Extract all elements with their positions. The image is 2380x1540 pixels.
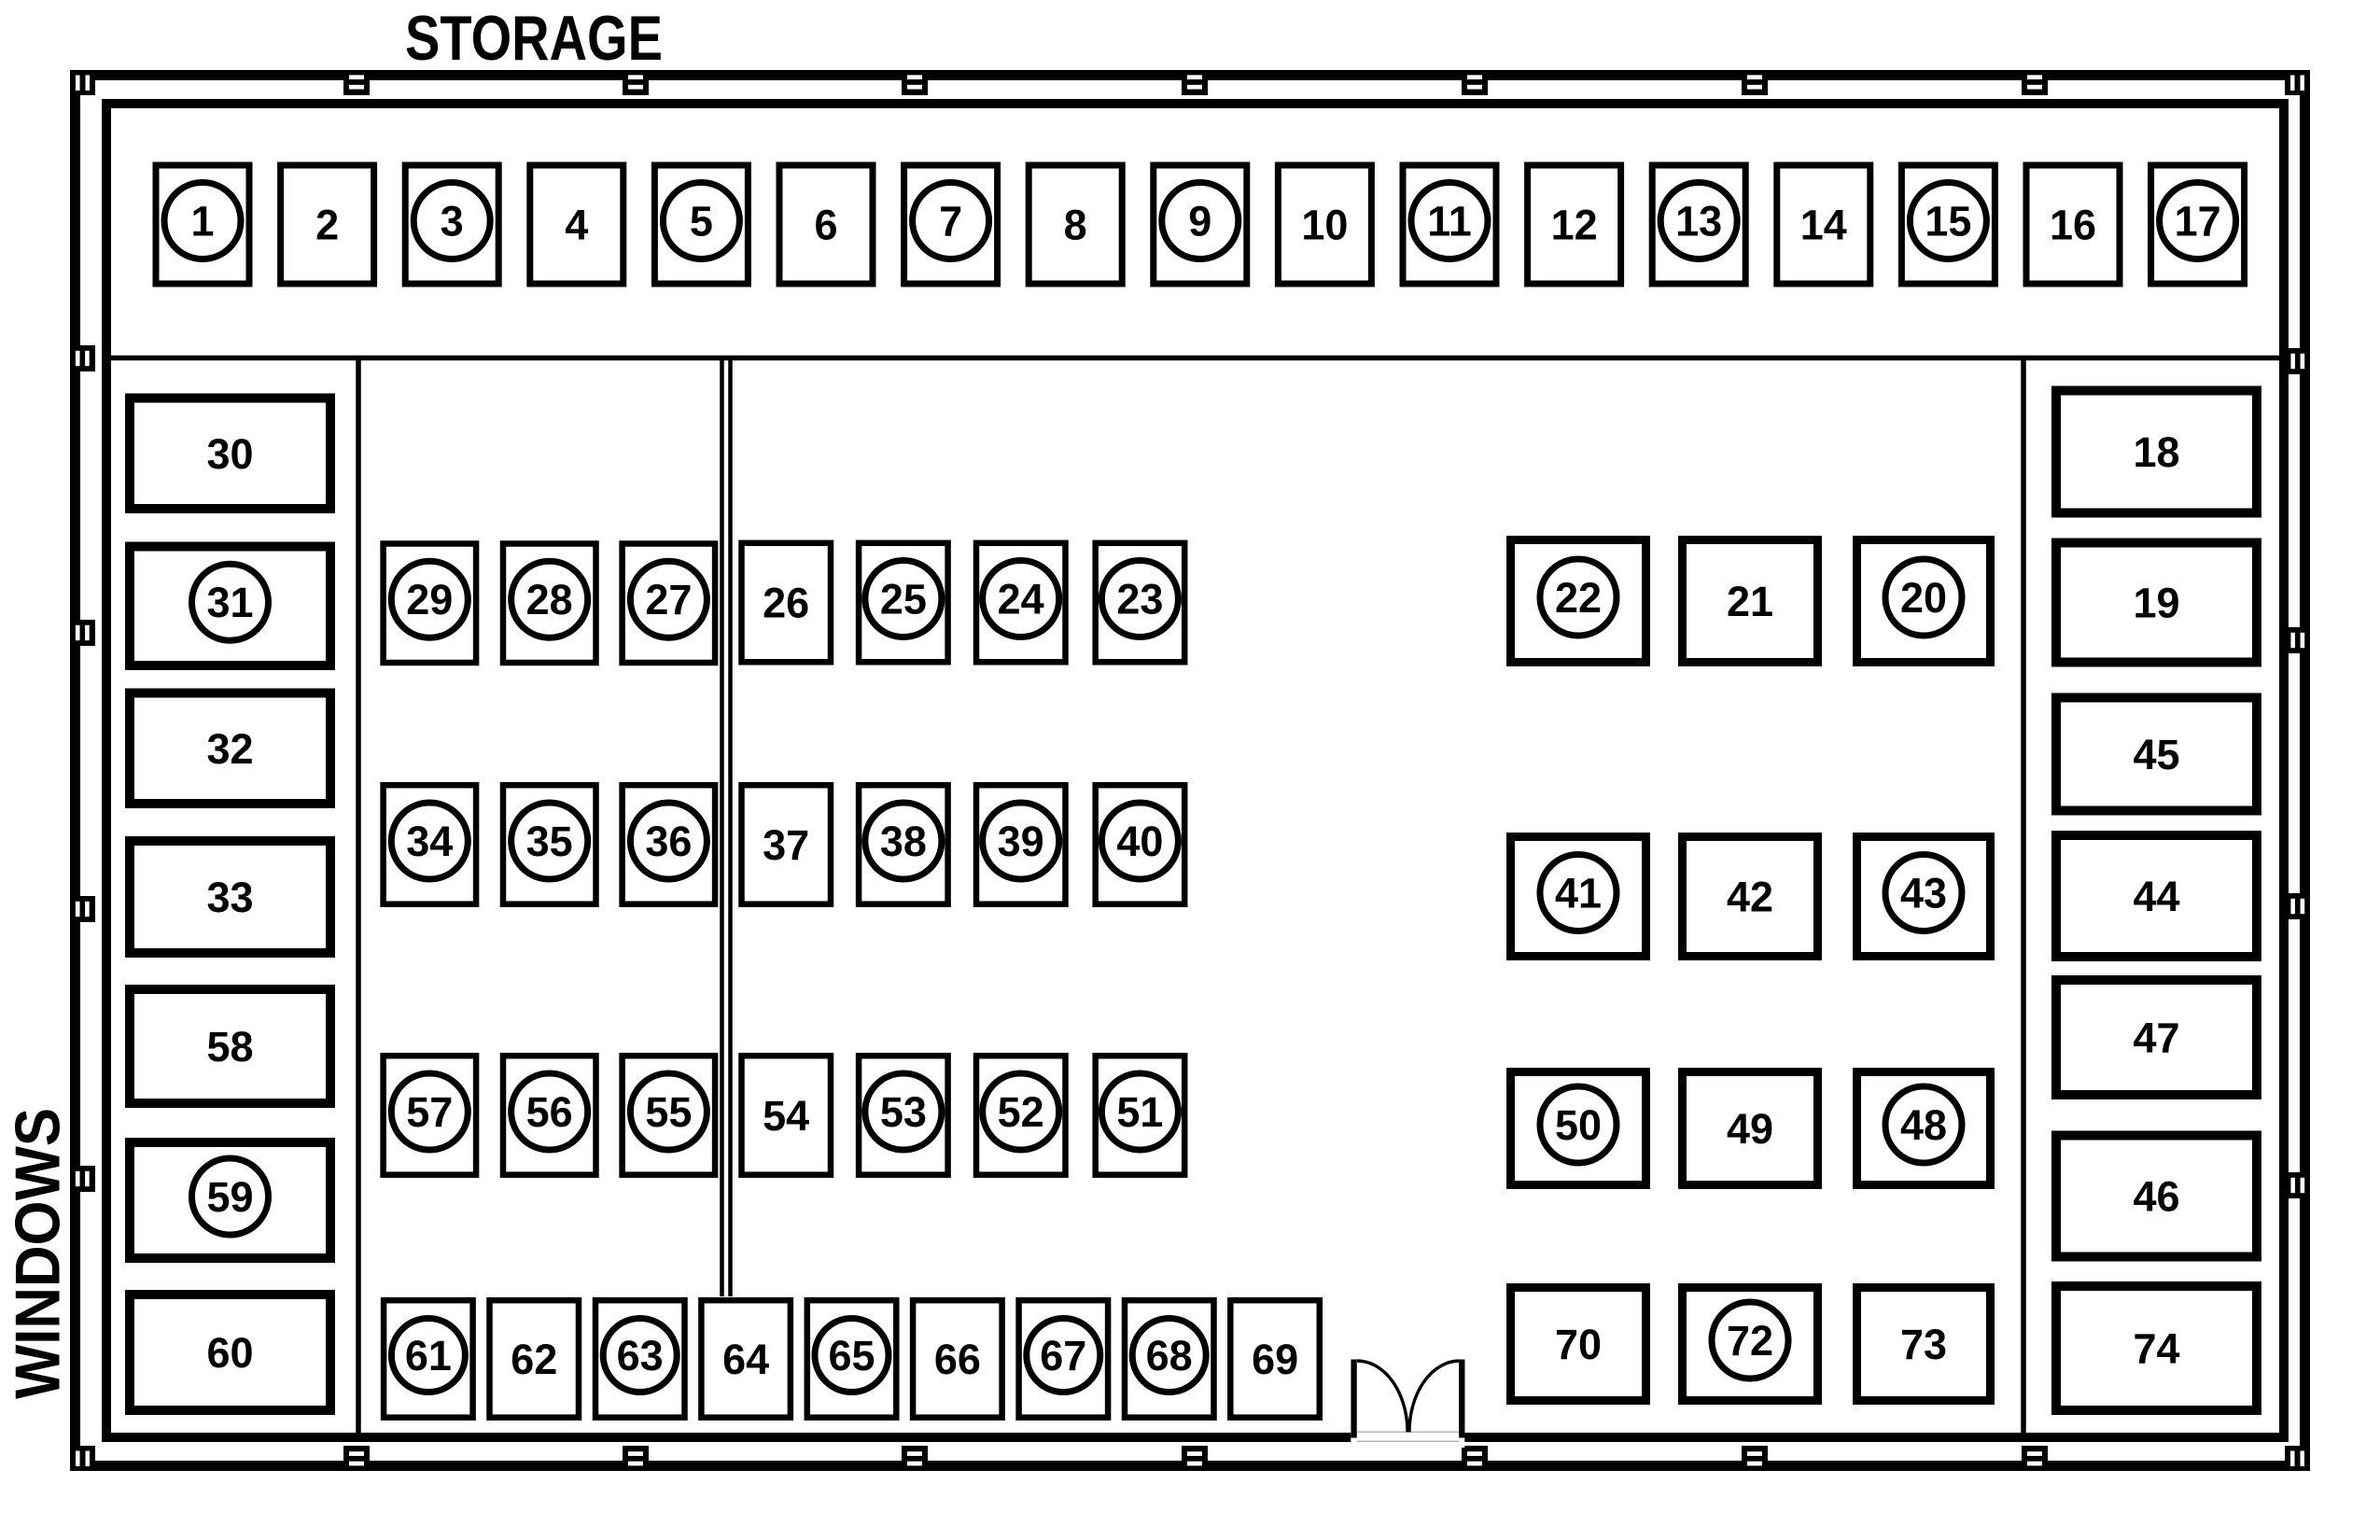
svg-text:54: 54 (763, 1092, 809, 1140)
svg-text:18: 18 (2133, 428, 2179, 476)
svg-text:23: 23 (1116, 576, 1163, 623)
svg-text:3: 3 (441, 198, 464, 245)
svg-text:33: 33 (206, 874, 253, 921)
svg-text:22: 22 (1555, 574, 1602, 622)
svg-text:70: 70 (1555, 1321, 1602, 1368)
svg-text:8: 8 (1064, 202, 1087, 249)
svg-text:34: 34 (406, 818, 453, 865)
svg-text:67: 67 (1040, 1332, 1086, 1379)
svg-text:11: 11 (1427, 198, 1472, 245)
svg-text:20: 20 (1900, 574, 1947, 622)
svg-text:74: 74 (2133, 1325, 2179, 1373)
svg-text:38: 38 (880, 818, 927, 865)
svg-text:64: 64 (722, 1336, 769, 1383)
svg-text:66: 66 (934, 1336, 981, 1383)
svg-text:1: 1 (190, 198, 214, 245)
svg-text:40: 40 (1116, 818, 1163, 865)
svg-text:29: 29 (406, 576, 453, 623)
svg-text:65: 65 (828, 1332, 875, 1379)
svg-text:52: 52 (998, 1088, 1044, 1136)
svg-text:9: 9 (1188, 198, 1211, 245)
svg-text:62: 62 (511, 1336, 557, 1383)
svg-text:43: 43 (1900, 870, 1947, 917)
svg-text:15: 15 (1925, 198, 1971, 245)
svg-text:55: 55 (645, 1088, 692, 1136)
svg-text:48: 48 (1900, 1101, 1947, 1149)
svg-text:47: 47 (2133, 1015, 2179, 1062)
svg-text:36: 36 (645, 818, 692, 865)
svg-text:44: 44 (2133, 873, 2179, 920)
svg-text:28: 28 (526, 576, 573, 623)
svg-text:35: 35 (526, 818, 573, 865)
svg-text:6: 6 (814, 202, 837, 249)
svg-text:59: 59 (206, 1173, 253, 1221)
svg-text:57: 57 (406, 1088, 453, 1136)
svg-text:53: 53 (880, 1088, 927, 1136)
svg-text:4: 4 (565, 202, 588, 249)
svg-text:7: 7 (939, 198, 962, 245)
svg-text:30: 30 (206, 430, 253, 478)
svg-text:17: 17 (2175, 198, 2221, 245)
svg-text:51: 51 (1116, 1088, 1163, 1136)
svg-text:16: 16 (2050, 202, 2096, 249)
svg-text:14: 14 (1800, 202, 1847, 249)
svg-text:39: 39 (998, 818, 1044, 865)
svg-text:12: 12 (1551, 202, 1598, 249)
svg-text:42: 42 (1727, 874, 1773, 921)
svg-text:68: 68 (1146, 1332, 1193, 1379)
svg-text:21: 21 (1727, 578, 1773, 625)
svg-text:61: 61 (405, 1332, 452, 1379)
svg-text:19: 19 (2133, 580, 2179, 627)
svg-text:49: 49 (1727, 1105, 1773, 1153)
svg-text:2: 2 (315, 202, 339, 249)
svg-text:STORAGE: STORAGE (405, 3, 663, 74)
svg-text:WINDOWS: WINDOWS (3, 1108, 74, 1399)
svg-text:37: 37 (763, 821, 809, 869)
svg-text:72: 72 (1727, 1317, 1773, 1365)
svg-text:58: 58 (206, 1023, 253, 1071)
svg-text:5: 5 (690, 198, 713, 245)
svg-text:56: 56 (526, 1088, 573, 1136)
svg-text:63: 63 (617, 1332, 664, 1379)
svg-text:24: 24 (998, 576, 1044, 623)
svg-text:45: 45 (2133, 731, 2179, 778)
svg-text:32: 32 (206, 725, 253, 773)
svg-text:31: 31 (206, 579, 253, 626)
svg-text:10: 10 (1301, 202, 1348, 249)
svg-text:26: 26 (763, 580, 809, 627)
svg-text:46: 46 (2133, 1173, 2179, 1221)
svg-text:13: 13 (1675, 198, 1722, 245)
svg-text:41: 41 (1555, 870, 1602, 917)
svg-text:69: 69 (1252, 1336, 1298, 1383)
svg-text:50: 50 (1555, 1101, 1602, 1149)
svg-text:73: 73 (1900, 1321, 1947, 1368)
svg-text:27: 27 (645, 576, 692, 623)
svg-text:60: 60 (206, 1329, 253, 1377)
svg-text:25: 25 (880, 576, 927, 623)
